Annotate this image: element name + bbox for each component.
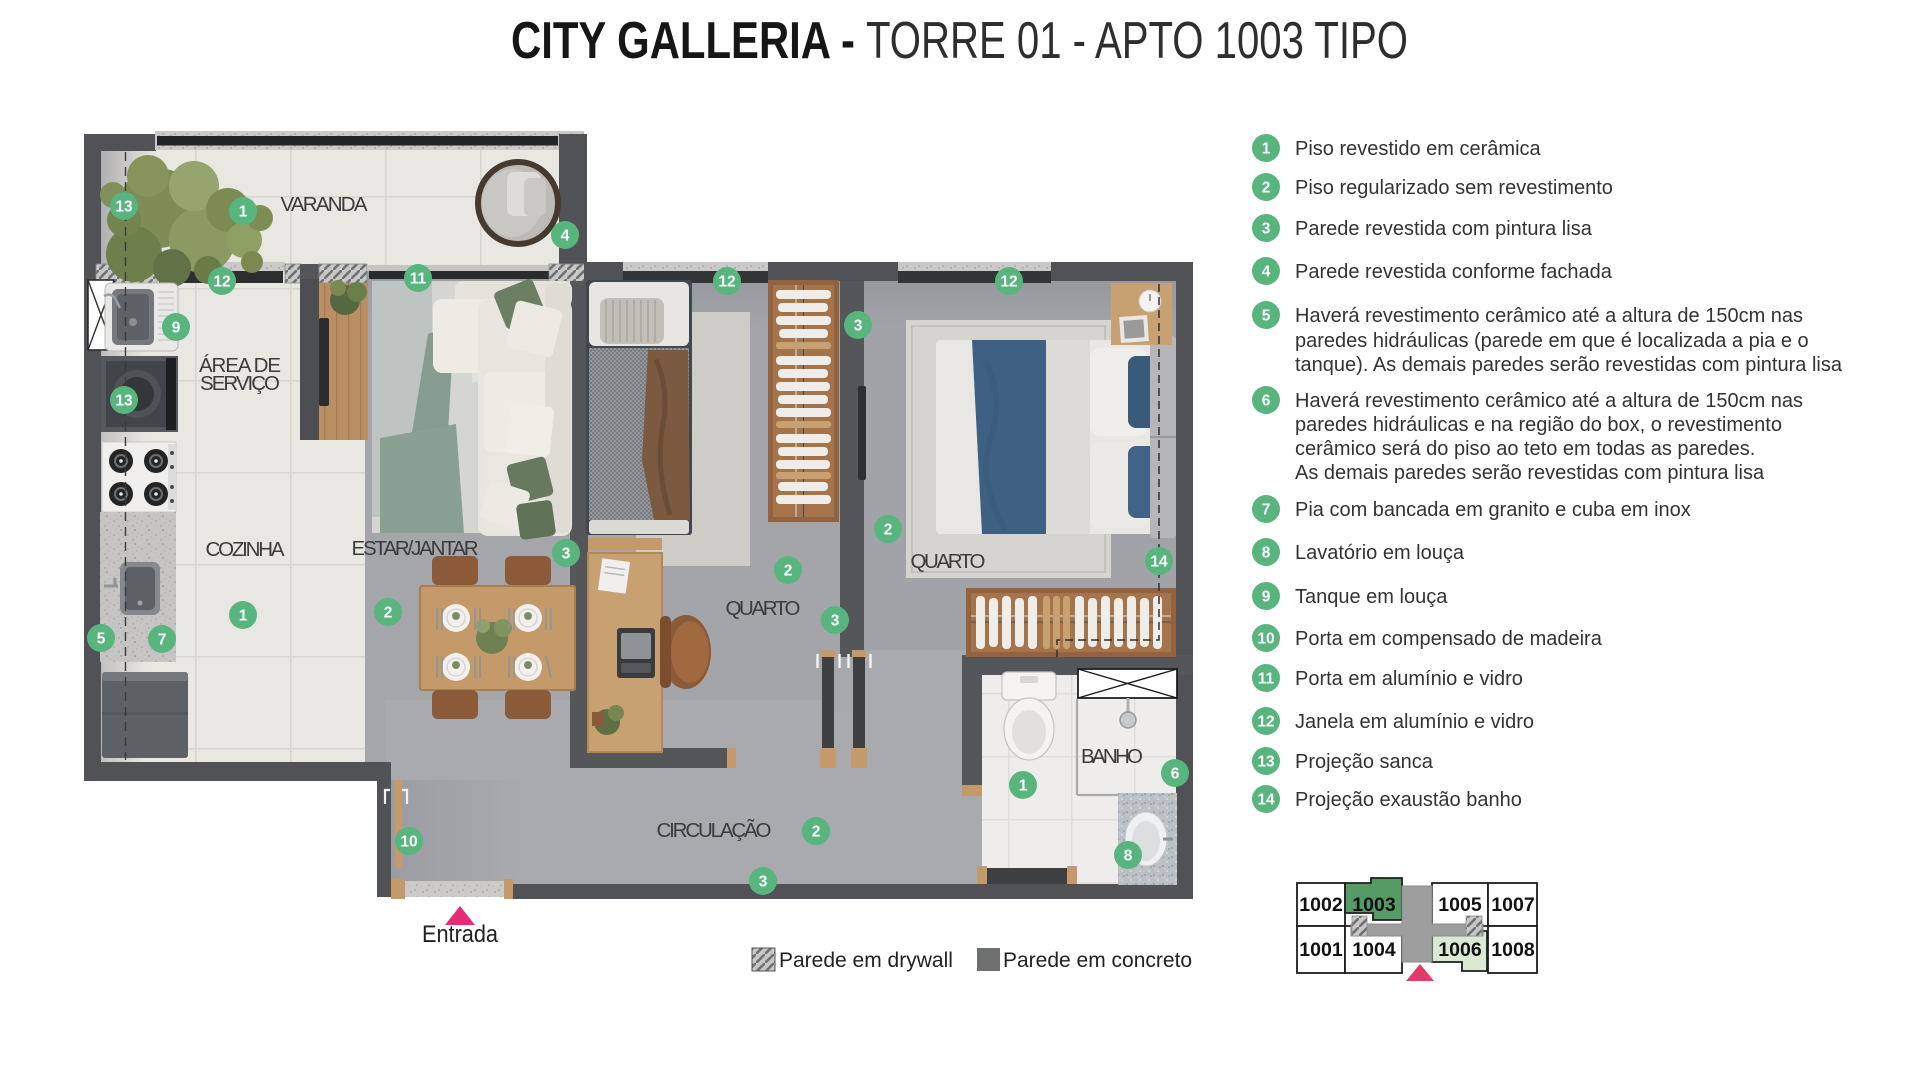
svg-text:Piso revestido em cerâmica: Piso revestido em cerâmica [1295,138,1542,160]
svg-text:CITY GALLERIA -: CITY GALLERIA - [511,12,855,70]
svg-text:9: 9 [172,320,181,337]
svg-text:8: 8 [1262,545,1271,562]
svg-text:12: 12 [213,274,230,291]
svg-text:1007: 1007 [1491,894,1534,916]
svg-text:As demais paredes serão revest: As demais paredes serão revestidas com p… [1295,462,1765,484]
svg-text:2: 2 [384,605,393,622]
svg-text:7: 7 [158,632,167,649]
svg-text:9: 9 [1262,589,1271,606]
svg-text:Porta em compensado de madeira: Porta em compensado de madeira [1295,628,1603,650]
svg-text:11: 11 [1258,671,1275,688]
svg-text:1005: 1005 [1438,894,1482,916]
svg-text:3: 3 [854,318,863,335]
svg-text:6: 6 [1171,766,1180,783]
svg-text:1004: 1004 [1352,939,1396,961]
svg-text:Piso regularizado sem revestim: Piso regularizado sem revestimento [1295,177,1613,199]
svg-text:11: 11 [410,271,427,288]
svg-text:BANHO: BANHO [1081,745,1143,768]
svg-text:Haverá revestimento cerâmico a: Haverá revestimento cerâmico até a altur… [1295,390,1803,412]
svg-text:3: 3 [562,546,571,563]
svg-text:3: 3 [831,613,840,630]
svg-text:14: 14 [1257,792,1275,809]
svg-text:4: 4 [561,228,570,245]
svg-text:12: 12 [1000,274,1017,291]
svg-text:Porta em alumínio e vidro: Porta em alumínio e vidro [1295,668,1523,690]
svg-text:7: 7 [1262,502,1271,519]
svg-text:TORRE 01 - APTO 1003 TIPO: TORRE 01 - APTO 1003 TIPO [866,12,1408,70]
svg-text:paredes hidráulicas (parede em: paredes hidráulicas (parede em que é loc… [1295,330,1809,352]
svg-text:Parede revestida conforme fach: Parede revestida conforme fachada [1295,261,1613,283]
svg-text:3: 3 [1262,221,1271,238]
svg-text:VARANDA: VARANDA [281,193,368,216]
svg-text:1: 1 [1262,141,1271,158]
svg-text:3: 3 [759,874,768,891]
svg-text:Haverá revestimento cerâmico a: Haverá revestimento cerâmico até a altur… [1295,305,1803,327]
svg-text:1: 1 [1019,778,1028,795]
svg-text:Pia com bancada em granito e c: Pia com bancada em granito e cuba em ino… [1295,499,1691,521]
svg-text:8: 8 [1124,848,1133,865]
svg-text:5: 5 [97,631,106,648]
svg-text:Janela em alumínio e vidro: Janela em alumínio e vidro [1295,711,1534,733]
svg-text:5: 5 [1262,308,1271,325]
svg-text:1003: 1003 [1352,894,1396,916]
svg-text:13: 13 [115,393,133,410]
svg-text:Projeção sanca: Projeção sanca [1295,751,1434,773]
svg-text:Tanque em louça: Tanque em louça [1295,586,1448,608]
svg-text:QUARTO: QUARTO [911,550,986,573]
svg-text:Parede em concreto: Parede em concreto [1003,949,1192,972]
svg-text:paredes hidráulicas e na regiã: paredes hidráulicas e na região do box, … [1295,414,1782,436]
svg-text:1008: 1008 [1491,939,1535,961]
svg-text:CIRCULAÇÃO: CIRCULAÇÃO [657,819,772,842]
svg-text:6: 6 [1262,393,1271,410]
svg-text:4: 4 [1262,264,1271,281]
svg-text:2: 2 [812,824,821,841]
svg-text:1006: 1006 [1438,939,1482,961]
svg-text:1002: 1002 [1299,894,1343,916]
svg-text:13: 13 [1257,754,1275,771]
svg-text:1: 1 [239,608,248,625]
svg-text:1: 1 [239,204,248,221]
svg-text:Parede em drywall: Parede em drywall [779,949,953,972]
svg-text:ESTAR/JANTAR: ESTAR/JANTAR [352,537,479,560]
svg-text:2: 2 [784,563,793,580]
svg-text:QUARTO: QUARTO [726,597,801,620]
svg-text:14: 14 [1150,554,1168,571]
svg-text:Entrada: Entrada [422,921,499,948]
svg-text:SERVIÇO: SERVIÇO [200,372,280,395]
svg-text:cerâmico será do piso ao teto: cerâmico será do piso ao teto em todas a… [1295,438,1755,460]
svg-text:Lavatório em louça: Lavatório em louça [1295,542,1465,564]
svg-text:1001: 1001 [1299,939,1343,961]
svg-text:2: 2 [884,522,893,539]
svg-text:COZINHA: COZINHA [206,538,285,561]
svg-text:13: 13 [115,199,133,216]
svg-text:12: 12 [718,274,735,291]
svg-text:2: 2 [1262,180,1271,197]
svg-text:10: 10 [400,834,417,851]
svg-text:Projeção exaustão banho: Projeção exaustão banho [1295,789,1522,811]
svg-text:10: 10 [1257,631,1274,648]
svg-text:Parede revestida com pintura l: Parede revestida com pintura lisa [1295,218,1593,240]
svg-text:tanque). As demais paredes ser: tanque). As demais paredes serão revesti… [1295,354,1843,376]
svg-text:12: 12 [1257,714,1274,731]
